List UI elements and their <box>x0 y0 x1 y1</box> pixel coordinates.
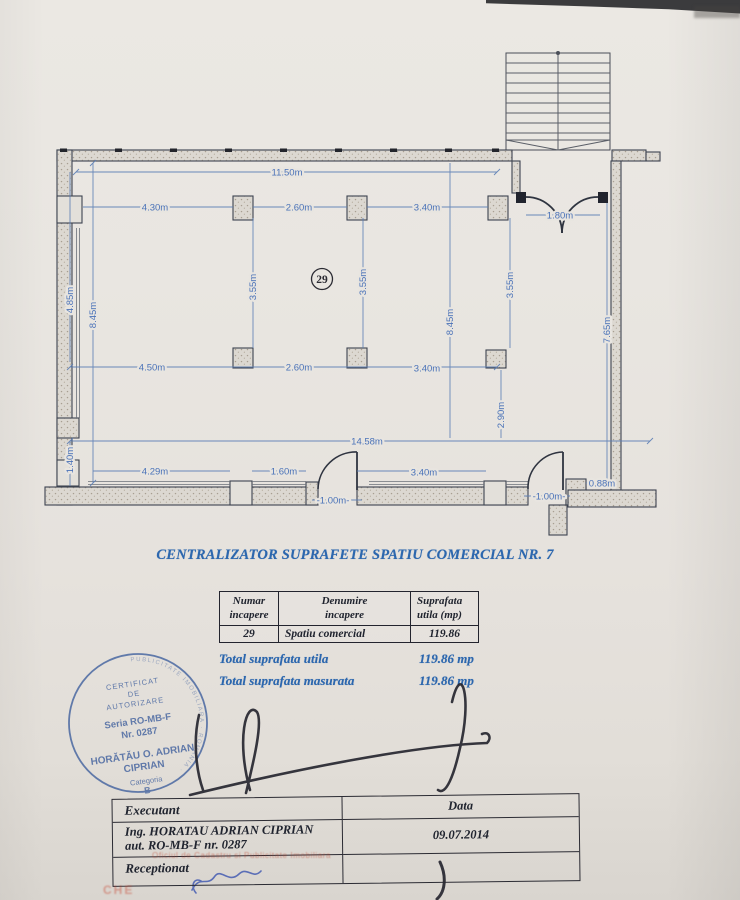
dim-mid-1: 4.50m <box>139 363 165 374</box>
dim-bay-3: 3.55m <box>505 272 516 298</box>
page-title: CENTRALIZATOR SUPRAFETE SPATIU COMERCIAL… <box>100 547 610 564</box>
scanned-document-page: { "title": "CENTRALIZATOR SUPRAFETE SPAT… <box>0 0 740 900</box>
executant-table: Executant Data Ing. HORATAU ADRIAN CIPRI… <box>111 793 580 887</box>
header-numar: Numar incapere <box>220 592 279 626</box>
dim-left-2: 8.45m <box>88 302 99 328</box>
header-denumire-line2: incapere <box>325 609 364 623</box>
header-suprafata-line2: utila (mp) <box>417 609 462 623</box>
dim-bottom-2: 1.60m <box>271 467 297 478</box>
surface-table: Numar incapere Denumire incapere Suprafa… <box>219 591 479 643</box>
faint-red-stamp-fragment: CHE <box>103 883 134 897</box>
dim-top-1: 4.30m <box>142 203 168 214</box>
stamp-line-categoria-value: B <box>144 785 152 796</box>
dim-bay-1: 3.55m <box>248 274 259 300</box>
header-denumire: Denumire incapere <box>279 592 411 626</box>
data-header: Data <box>342 794 578 820</box>
dim-bottom-3: 3.40m <box>411 468 437 479</box>
dim-mid-3: 3.40m <box>414 364 440 375</box>
authorization-stamp: AGENTIA NATIONALA DE CADASTRU SI PUBLICI… <box>51 636 225 810</box>
dim-bottom-overall: 14.58m <box>351 437 383 448</box>
cell-denumire: Spatiu comercial <box>279 626 411 642</box>
dim-corner: 0.88m <box>589 479 615 490</box>
header-numar-line2: incapere <box>229 609 268 623</box>
dim-right: 7.65m <box>602 317 613 343</box>
dim-left-1: 4.85m <box>65 287 76 313</box>
header-denumire-line1: Denumire <box>322 595 368 609</box>
faint-red-stamp-text: Oficiul de Cadastru si Publicitate Imobi… <box>152 851 522 860</box>
floor-plan: 11.50m 4.30m 2.60m 3.40m 1.80m 4.50m 2.6… <box>0 0 740 538</box>
cell-numar: 29 <box>220 626 279 642</box>
dim-mid-2: 2.60m <box>286 363 312 374</box>
total-masurata-value: 119.86 mp <box>419 673 474 689</box>
dim-bottom-1: 4.29m <box>142 467 168 478</box>
dim-left-3: 1.40m <box>65 447 76 473</box>
dim-door-2: -1.00m- <box>533 492 566 503</box>
dim-lower-right: 2.90m <box>496 402 507 428</box>
bottom-door-1 <box>318 452 357 490</box>
total-utila-label: Total suprafata utila <box>219 651 328 667</box>
dim-door-1: -1.00m- <box>317 496 350 507</box>
structural-columns <box>233 196 508 368</box>
executant-header: Executant <box>112 797 342 823</box>
dim-bay-2: 3.55m <box>358 269 369 295</box>
date-cell: 09.07.2014 <box>343 817 579 855</box>
stamp-line-de: DE <box>127 688 141 699</box>
header-numar-line1: Numar <box>233 595 265 609</box>
header-suprafata: Suprafata utila (mp) <box>411 592 478 626</box>
staircase <box>506 51 610 150</box>
dim-top-3: 3.40m <box>414 203 440 214</box>
header-suprafata-line1: Suprafata <box>417 595 462 609</box>
dim-mid-vertical: 8.45m <box>445 309 456 335</box>
total-utila-value: 119.86 mp <box>419 651 474 667</box>
room-number: 29 <box>316 274 328 286</box>
dim-entrance: 1.80m <box>547 211 573 222</box>
dim-top-2: 2.60m <box>286 203 312 214</box>
dim-top-overall: 11.50m <box>272 168 303 179</box>
room-number-badge: 29 <box>312 269 333 290</box>
storefront-glazing <box>77 228 529 485</box>
cell-suprafata: 119.86 <box>411 626 478 642</box>
bottom-door-2 <box>528 452 563 490</box>
total-masurata-label: Total suprafata masurata <box>219 673 354 689</box>
